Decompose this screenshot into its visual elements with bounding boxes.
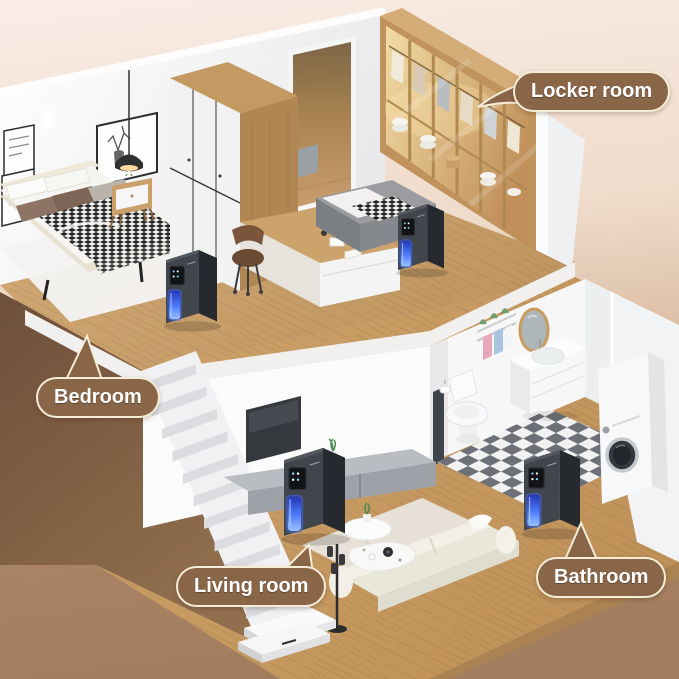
washing-machine bbox=[598, 352, 668, 504]
callout-bathroom: Bathroom bbox=[536, 557, 666, 598]
round-mirror bbox=[520, 309, 548, 351]
callout-living-room: Living room bbox=[176, 566, 326, 607]
desk-chair bbox=[232, 225, 264, 296]
bathroom-door bbox=[433, 387, 444, 466]
product-scene: Locker room Bedroom Living room Bathroom bbox=[0, 0, 679, 679]
doorway-mirror bbox=[288, 36, 356, 214]
callout-locker-room: Locker room bbox=[513, 71, 670, 112]
callout-bedroom: Bedroom bbox=[36, 377, 160, 418]
